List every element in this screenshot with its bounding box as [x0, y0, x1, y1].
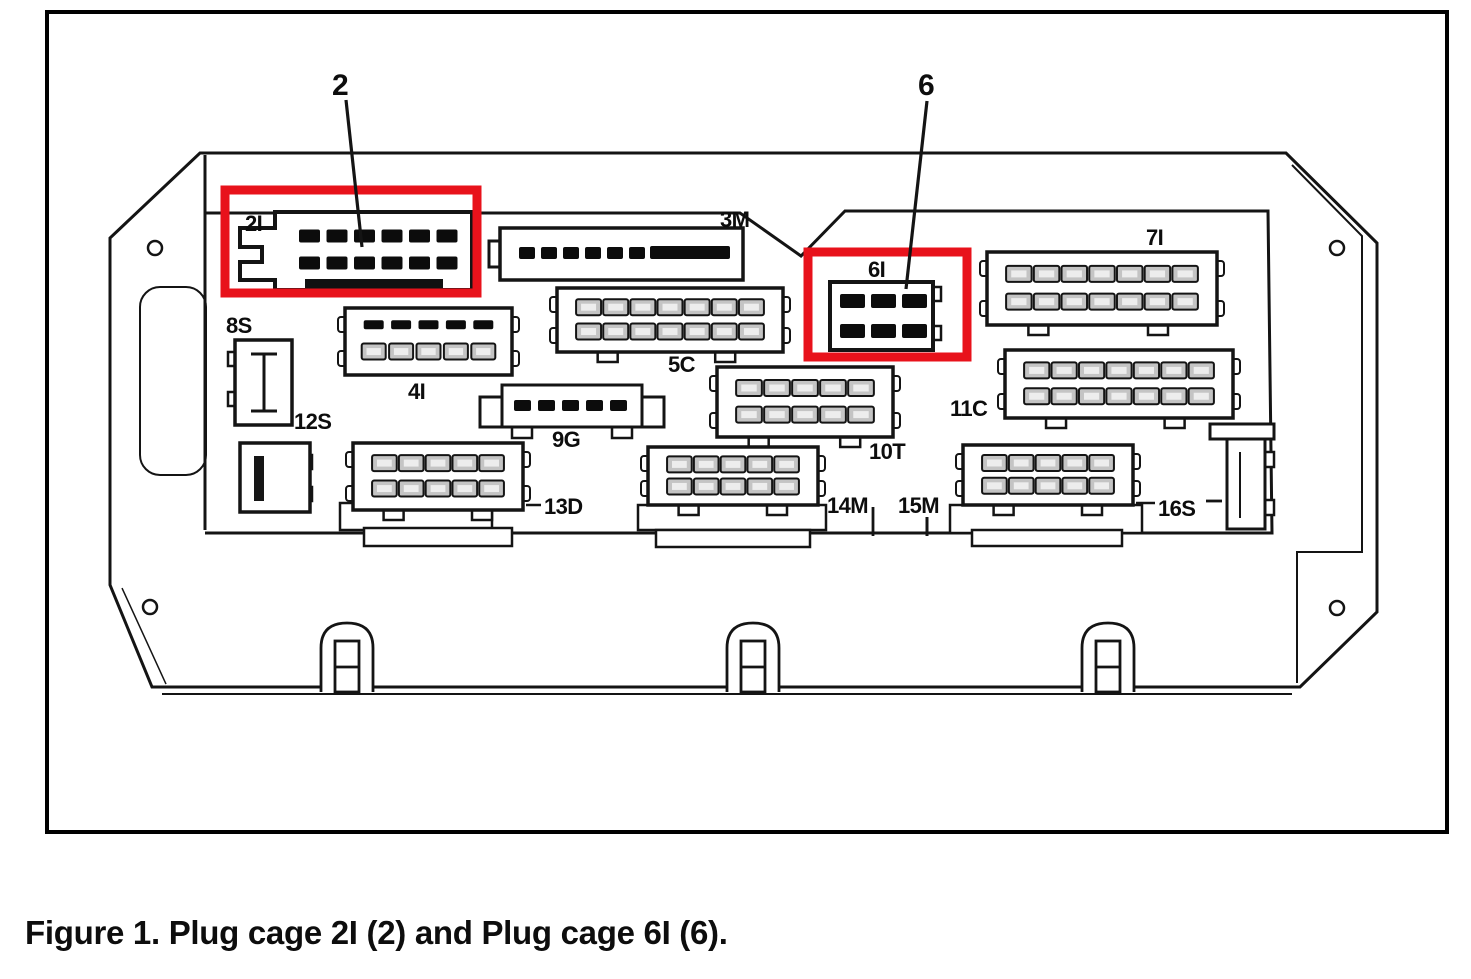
connector-label-15M: 15M: [898, 493, 939, 518]
document-page: 2I3M4I5C6I7I8S9G10T11C12S13D14M15M16S 26…: [0, 0, 1471, 979]
mounting-tab-center: [727, 623, 779, 692]
connector-label-16S: 16S: [1158, 496, 1195, 521]
mounting-hole-bottom-right: [1330, 601, 1344, 615]
callout-number-6: 6: [918, 69, 935, 102]
connector-label-5C: 5C: [668, 352, 696, 377]
connector-label-12S: 12S: [294, 409, 331, 434]
connector-label-6I: 6I: [868, 257, 885, 282]
connector-label-11C: 11C: [950, 396, 988, 421]
connector-label-8S: 8S: [226, 313, 252, 338]
connector-2I: 2I: [240, 211, 472, 291]
connector-label-4I: 4I: [408, 379, 425, 404]
mounting-hole-top-left: [148, 241, 162, 255]
callout-number-2: 2: [332, 69, 349, 102]
figure-image: 2I3M4I5C6I7I8S9G10T11C12S13D14M15M16S 26…: [0, 0, 1471, 979]
connector-label-9G: 9G: [552, 427, 580, 452]
left-pocket: [140, 287, 206, 475]
mounting-hole-top-right: [1330, 241, 1344, 255]
connector-label-10T: 10T: [869, 439, 906, 464]
figure-caption: Figure 1. Plug cage 2I (2) and Plug cage…: [25, 914, 728, 951]
mounting-hole-bottom-left: [143, 600, 157, 614]
mounting-tab-right: [1082, 623, 1134, 692]
connector-label-7I: 7I: [1146, 225, 1163, 250]
connector-label-2I: 2I: [245, 211, 262, 236]
connector-label-13D: 13D: [544, 494, 583, 519]
deck-lip-13d: [364, 528, 512, 546]
mounting-tab-left: [321, 623, 373, 692]
connector-label-3M: 3M: [720, 207, 749, 232]
connectors: 2I3M4I5C6I7I8S9G10T11C12S13D14M15M16S: [226, 207, 1240, 536]
deck-foot-14m: [638, 505, 826, 530]
deck-lip-16s: [972, 530, 1122, 546]
connector-label-14M: 14M: [827, 493, 868, 518]
deck-lip-14m: [656, 530, 810, 547]
